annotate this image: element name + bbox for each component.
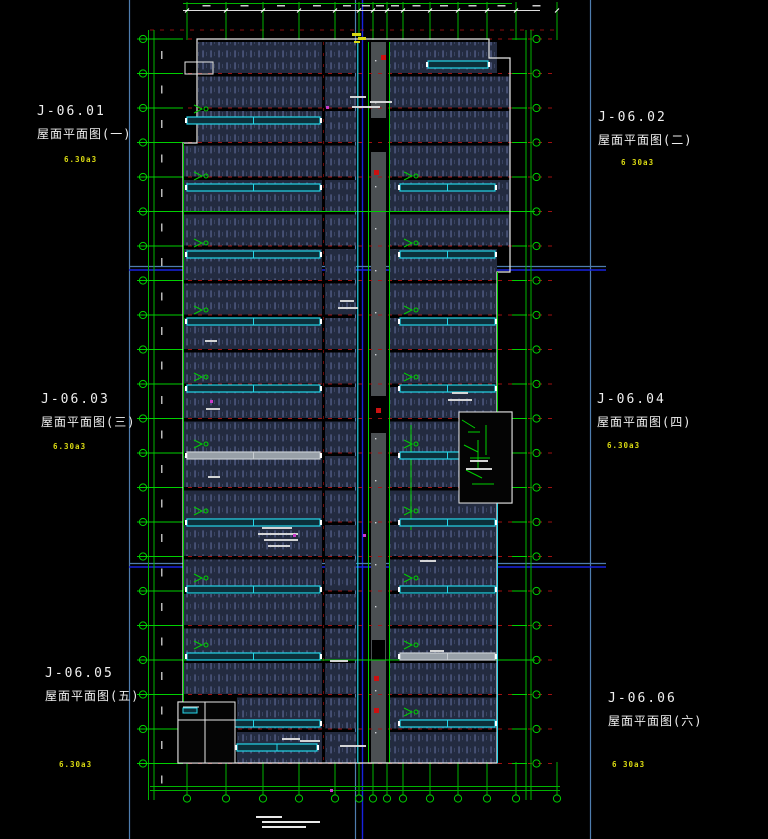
plan-title: 屋面平面图(三) [41, 415, 135, 430]
annex-rooms [178, 702, 235, 763]
cad-sheet: J-06.01 屋面平面图(一) 6.30a3 J-06.02 屋面平面图(二)… [0, 0, 768, 839]
notes-block [256, 816, 320, 828]
plan-title: 屋面平面图(四) [597, 415, 691, 430]
revision-note-6: 6 30a3 [612, 760, 645, 769]
equipment-well [459, 412, 512, 503]
plan-code: J-06.02 [598, 110, 692, 126]
plan-code: J-06.04 [597, 392, 691, 408]
plan-label-4: J-06.04 屋面平面图(四) [597, 392, 691, 430]
plan-label-2: J-06.02 屋面平面图(二) [598, 110, 692, 148]
revision-note-5: 6.30a3 [59, 760, 92, 769]
revision-note-4: 6.30a3 [607, 441, 640, 450]
plan-code: J-06.06 [608, 691, 702, 707]
plan-label-5: J-06.05 屋面平面图(五) [45, 666, 139, 704]
plan-title: 屋面平面图(二) [598, 133, 692, 148]
plan-label-6: J-06.06 屋面平面图(六) [608, 691, 702, 729]
plan-code: J-06.05 [45, 666, 139, 682]
central-corridor [371, 42, 386, 763]
revision-note-2: 6 30a3 [621, 158, 654, 167]
plan-label-1: J-06.01 屋面平面图(一) [37, 104, 131, 142]
dimension-line [183, 5, 559, 13]
plan-title: 屋面平面图(一) [37, 127, 131, 142]
revision-note-3: 6.30a3 [53, 442, 86, 451]
plan-title: 屋面平面图(六) [608, 714, 702, 729]
plan-title: 屋面平面图(五) [45, 689, 139, 704]
revision-note-1: 6.30a3 [64, 155, 97, 164]
plan-code: J-06.01 [37, 104, 131, 120]
plan-label-3: J-06.03 屋面平面图(三) [41, 392, 135, 430]
plan-code: J-06.03 [41, 392, 135, 408]
